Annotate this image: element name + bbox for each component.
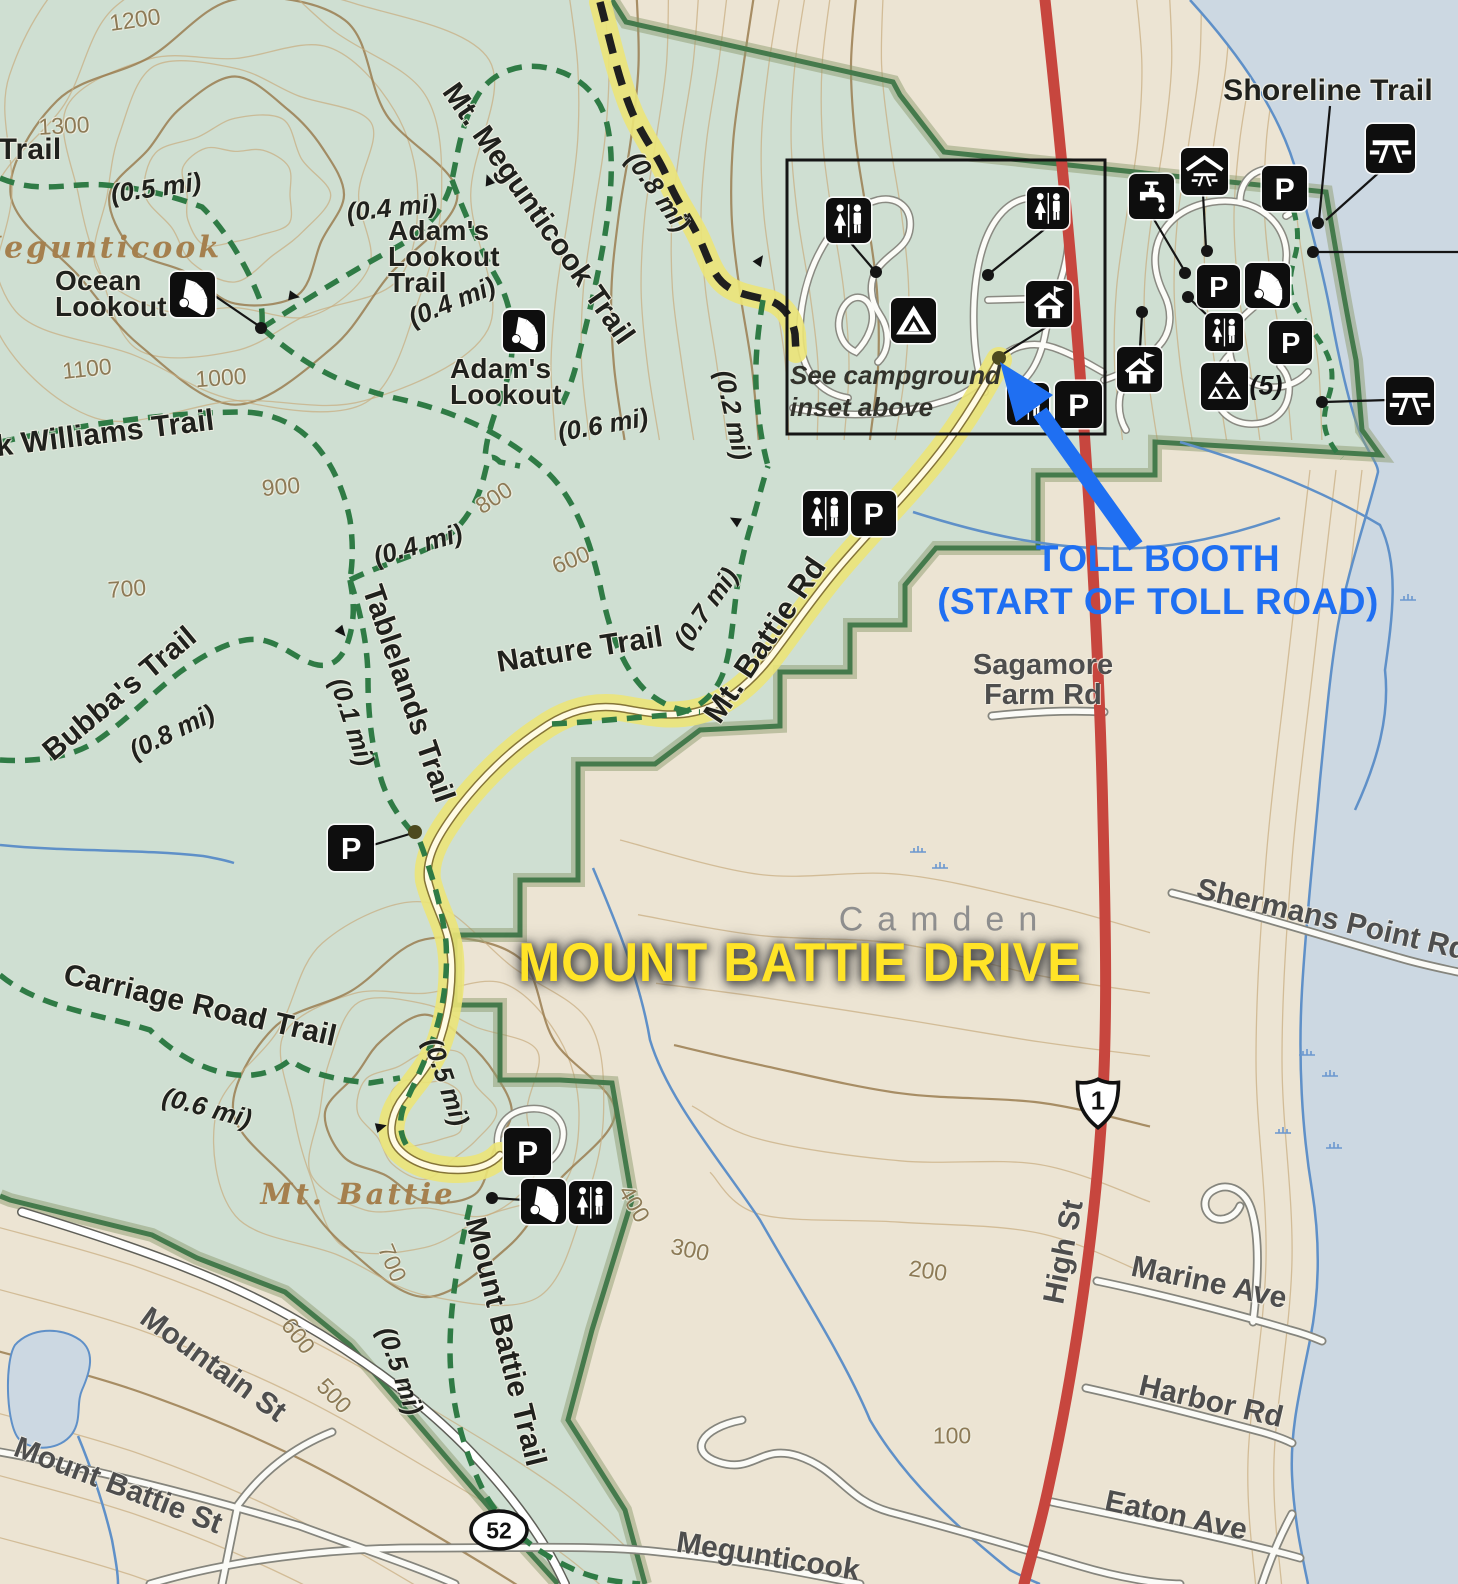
- contour-label: 1300: [38, 111, 91, 141]
- parking-icon: [1055, 381, 1102, 428]
- restroom-icon: [569, 1181, 612, 1224]
- toll-booth-annotation-line1: TOLL BOOTH: [1036, 538, 1280, 580]
- viewpoint-icon: [1245, 263, 1290, 308]
- place-label-mt-battie: Mt. Battie: [260, 1177, 455, 1211]
- viewpoint-icon: [170, 272, 215, 317]
- contour-label: 900: [261, 472, 302, 502]
- road-label-sagamore: Sagamore Farm Rd: [958, 650, 1128, 710]
- group-sites-count: (5): [1250, 371, 1283, 402]
- svg-text:52: 52: [486, 1517, 512, 1543]
- parking-icon: [328, 825, 374, 871]
- trail-label-shoreline: Shoreline Trail: [1223, 74, 1433, 108]
- picnic-area-icon: [1366, 124, 1415, 173]
- restroom-icon: [1205, 313, 1243, 351]
- group-camping-icon: [1201, 363, 1248, 410]
- campground-icon: [891, 298, 936, 343]
- restroom-icon: [826, 198, 871, 243]
- poi-label-adams-lookout: Adam's Lookout: [450, 356, 568, 408]
- contour-label: 1000: [195, 363, 248, 394]
- restroom-icon: [1007, 383, 1049, 425]
- picnic-shelter-icon: [1181, 148, 1228, 195]
- contour-label: 200: [907, 1255, 949, 1287]
- mount-battie-drive-annotation: MOUNT BATTIE DRIVE: [518, 930, 1082, 994]
- place-label-megunticook: Megunticook: [0, 231, 222, 266]
- ranger-station-icon: [1026, 281, 1072, 327]
- parking-icon: [1269, 321, 1312, 364]
- parking-icon: [851, 491, 896, 536]
- poi-label-ocean-lookout: Ocean Lookout: [55, 268, 167, 320]
- contour-label: 1100: [61, 353, 113, 385]
- parking-icon: [1262, 166, 1307, 211]
- svg-text:1: 1: [1091, 1087, 1105, 1115]
- contour-label: 100: [933, 1423, 971, 1450]
- restroom-icon: [1027, 187, 1069, 229]
- water-icon: [1129, 174, 1174, 219]
- parking-icon: [1197, 265, 1240, 308]
- picnic-area-icon: [1386, 377, 1434, 425]
- viewpoint-icon: [521, 1179, 566, 1224]
- inset-note-line1: See campground: [790, 360, 1001, 391]
- toll-booth-annotation-line2: (START OF TOLL ROAD): [937, 581, 1379, 623]
- parking-icon: [504, 1128, 551, 1175]
- contour-label: 700: [107, 574, 147, 604]
- inset-note-line2: inset above: [790, 392, 933, 423]
- restroom-icon: [803, 491, 848, 536]
- ranger-station-icon: [1117, 347, 1162, 392]
- trailhead-dot: [408, 825, 422, 839]
- viewpoint-icon: [503, 310, 545, 352]
- trail-map: P: [0, 0, 1458, 1584]
- route-52-shield: 52: [468, 1508, 530, 1557]
- us-route-1-shield: 1: [1072, 1076, 1124, 1137]
